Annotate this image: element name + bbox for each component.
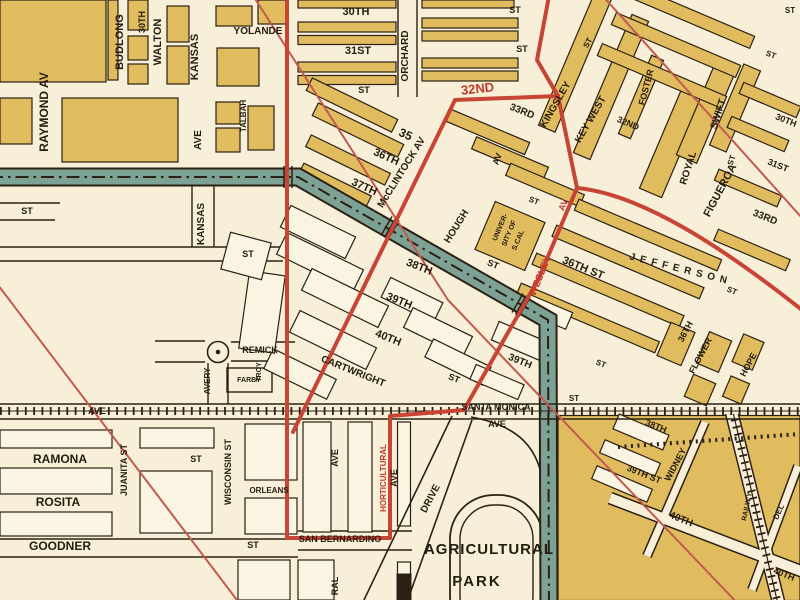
- vintage-street-map: RAYMOND AVBUDLONG30THWALTONKANSASAVEYOLA…: [0, 0, 800, 600]
- street-label-raymond-av: RAYMOND AV: [37, 72, 51, 152]
- unsubdivided-block: [298, 560, 334, 600]
- street-label-st: ST: [190, 454, 202, 464]
- street-label-san-bernardino: SAN BERNARDINO: [299, 534, 382, 544]
- unsubdivided-block: [303, 422, 331, 532]
- street-label-yolande: YOLANDE: [234, 26, 283, 37]
- street-label-wisconsin-st: WISCONSIN ST: [223, 439, 233, 506]
- street-label-31st: 31ST: [345, 45, 372, 57]
- unsubdivided-block: [0, 430, 112, 448]
- unsubdivided-block: [140, 471, 212, 533]
- street-label-agricultural: AGRICULTURAL: [424, 541, 554, 558]
- unsubdivided-block: [245, 424, 297, 480]
- city-block: [167, 46, 189, 84]
- street-label-ramona: RAMONA: [33, 452, 87, 466]
- street-label-remick: REMICK: [242, 345, 278, 355]
- city-block: [167, 6, 189, 42]
- city-block: [128, 64, 148, 84]
- street-label-goodner: GOODNER: [29, 539, 91, 553]
- map-stage: RAYMOND AVBUDLONG30THWALTONKANSASAVEYOLA…: [0, 0, 800, 600]
- city-block: [298, 22, 396, 32]
- city-block: [217, 48, 259, 86]
- street-label-avery: AVERY: [203, 367, 212, 394]
- street-label-ave: AVE: [330, 449, 340, 467]
- city-block: [422, 0, 514, 8]
- street-label-talbah: TALBAH: [239, 100, 248, 133]
- street-label-st: ST: [21, 206, 33, 216]
- street-label-ave: AVE: [389, 469, 399, 487]
- street-label-orleans: ORLEANS: [249, 486, 289, 495]
- street-label-st: ST: [785, 6, 795, 15]
- city-block: [298, 36, 396, 45]
- city-block: [258, 0, 286, 24]
- city-block: [248, 106, 274, 150]
- street-label-30th: 30TH: [137, 11, 147, 33]
- city-block: [216, 6, 252, 26]
- street-label-ave: AVE: [193, 130, 204, 150]
- city-block: [422, 71, 518, 81]
- street-label-st: ST: [242, 249, 254, 259]
- street-label-st: ST: [247, 540, 259, 550]
- city-block: [422, 58, 518, 68]
- unsubdivided-block: [140, 428, 214, 448]
- street-label-kansas: KANSAS: [196, 203, 207, 246]
- street-label-santa-monica: SANTA MONICA: [462, 402, 531, 412]
- street-label-st: ST: [358, 85, 370, 95]
- street-label-st: ST: [516, 44, 528, 54]
- street-label-30th: 30TH: [343, 6, 370, 18]
- street-label-st: ST: [569, 394, 579, 403]
- city-block: [298, 62, 396, 72]
- street-label-rosita: ROSITA: [36, 495, 81, 509]
- street-label-ave: AVE: [488, 419, 506, 429]
- unsubdivided-block: [0, 468, 112, 494]
- street-label-troy: TROY: [256, 362, 263, 382]
- unsubdivided-block: [348, 422, 372, 532]
- park-building: [397, 574, 411, 600]
- unsubdivided-block: [238, 560, 290, 600]
- street-label-walton: WALTON: [152, 19, 164, 66]
- city-block: [422, 31, 518, 41]
- street-label-juanita-st: JUANITA ST: [119, 444, 129, 497]
- city-block: [422, 18, 518, 28]
- unsubdivided-block: [0, 512, 112, 536]
- city-block: [0, 98, 32, 144]
- street-label-park: PARK: [452, 573, 501, 590]
- city-block: [62, 98, 178, 162]
- unsubdivided-block: [245, 498, 297, 534]
- street-label-ral: RAL: [330, 576, 340, 595]
- city-block: [216, 102, 240, 124]
- street-label-kansas: KANSAS: [189, 34, 201, 80]
- city-block: [0, 0, 106, 82]
- street-label-st: ST: [509, 5, 521, 15]
- street-label-orchard: ORCHARD: [400, 30, 411, 81]
- street-label-horticultural: HORTICULTURAL: [379, 444, 388, 512]
- city-block: [216, 128, 240, 152]
- street-label-budlong: BUDLONG: [114, 14, 126, 70]
- street-label-ave: AVE: [88, 406, 106, 416]
- unsubdivided-block: [398, 422, 411, 526]
- city-block: [128, 36, 148, 60]
